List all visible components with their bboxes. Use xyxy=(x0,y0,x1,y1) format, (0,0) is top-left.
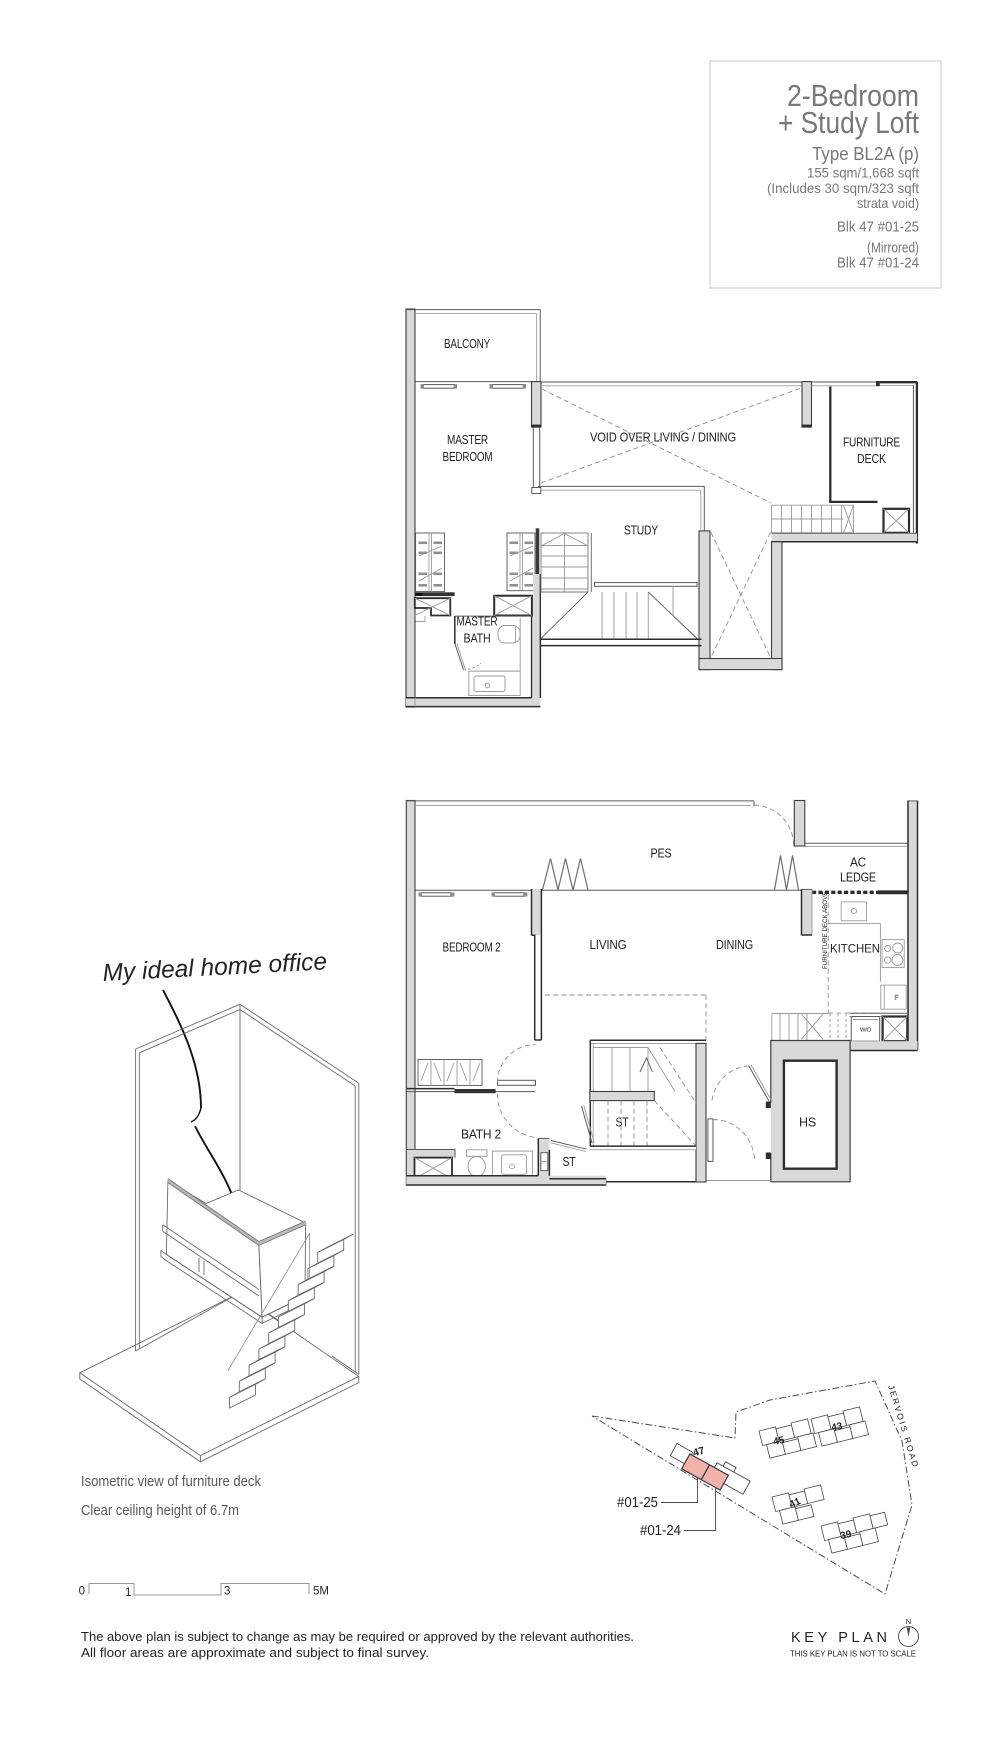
svg-text:BEDROOM: BEDROOM xyxy=(443,450,493,464)
svg-text:0: 0 xyxy=(79,1586,85,1598)
svg-text:BATH 2: BATH 2 xyxy=(461,1128,501,1142)
svg-text:DECK: DECK xyxy=(857,452,887,466)
svg-text:+ Study Loft: + Study Loft xyxy=(778,106,919,140)
svg-text:VOID OVER LIVING / DINING: VOID OVER LIVING / DINING xyxy=(590,431,736,445)
svg-text:#01-24: #01-24 xyxy=(640,1523,681,1539)
svg-text:ST: ST xyxy=(563,1155,576,1169)
svg-text:(Mirrored): (Mirrored) xyxy=(867,241,919,257)
svg-text:#01-25: #01-25 xyxy=(617,1495,658,1511)
svg-text:F: F xyxy=(895,996,899,1002)
svg-text:The above plan is subject to c: The above plan is subject to change as m… xyxy=(81,1629,634,1644)
svg-text:(Includes 30 sqm/323 sqft: (Includes 30 sqm/323 sqft xyxy=(767,181,919,196)
svg-text:LEDGE: LEDGE xyxy=(840,871,876,885)
svg-text:Type BL2A (p): Type BL2A (p) xyxy=(812,144,919,164)
svg-text:FURNITURE: FURNITURE xyxy=(843,436,900,450)
svg-text:LIVING: LIVING xyxy=(590,938,627,952)
svg-text:AC: AC xyxy=(850,856,866,870)
svg-text:DINING: DINING xyxy=(716,938,753,952)
svg-text:PES: PES xyxy=(651,847,672,861)
svg-text:KITCHEN: KITCHEN xyxy=(830,942,880,956)
svg-text:BEDROOM 2: BEDROOM 2 xyxy=(443,941,501,955)
svg-text:BATH: BATH xyxy=(464,632,491,646)
svg-text:BALCONY: BALCONY xyxy=(444,337,491,351)
svg-text:KEY PLAN: KEY PLAN xyxy=(791,1630,887,1646)
svg-text:STUDY: STUDY xyxy=(624,524,659,538)
svg-text:Blk 47 #01-25: Blk 47 #01-25 xyxy=(837,220,919,236)
svg-text:Clear ceiling height of 6.7m: Clear ceiling height of 6.7m xyxy=(81,1502,239,1519)
svg-text:W/D: W/D xyxy=(860,1028,871,1034)
svg-text:N: N xyxy=(906,1617,911,1626)
svg-text:5M: 5M xyxy=(313,1586,329,1598)
svg-text:ST: ST xyxy=(616,1116,629,1130)
svg-text:3: 3 xyxy=(224,1586,230,1598)
svg-text:Isometric view of furniture de: Isometric view of furniture deck xyxy=(81,1473,261,1490)
svg-text:155 sqm/1,668 sqft: 155 sqm/1,668 sqft xyxy=(807,166,919,181)
svg-text:Blk 47 #01-24: Blk 47 #01-24 xyxy=(837,256,919,272)
svg-text:strata void): strata void) xyxy=(857,196,919,211)
svg-text:1: 1 xyxy=(125,1587,131,1599)
svg-text:All floor areas are approximat: All floor areas are approximate and subj… xyxy=(81,1645,429,1660)
svg-text:MASTER: MASTER xyxy=(447,433,488,447)
svg-text:HS: HS xyxy=(799,1116,816,1130)
svg-text:MASTER: MASTER xyxy=(457,615,498,629)
svg-text:THIS KEY PLAN IS NOT TO SCALE: THIS KEY PLAN IS NOT TO SCALE xyxy=(790,1649,916,1659)
